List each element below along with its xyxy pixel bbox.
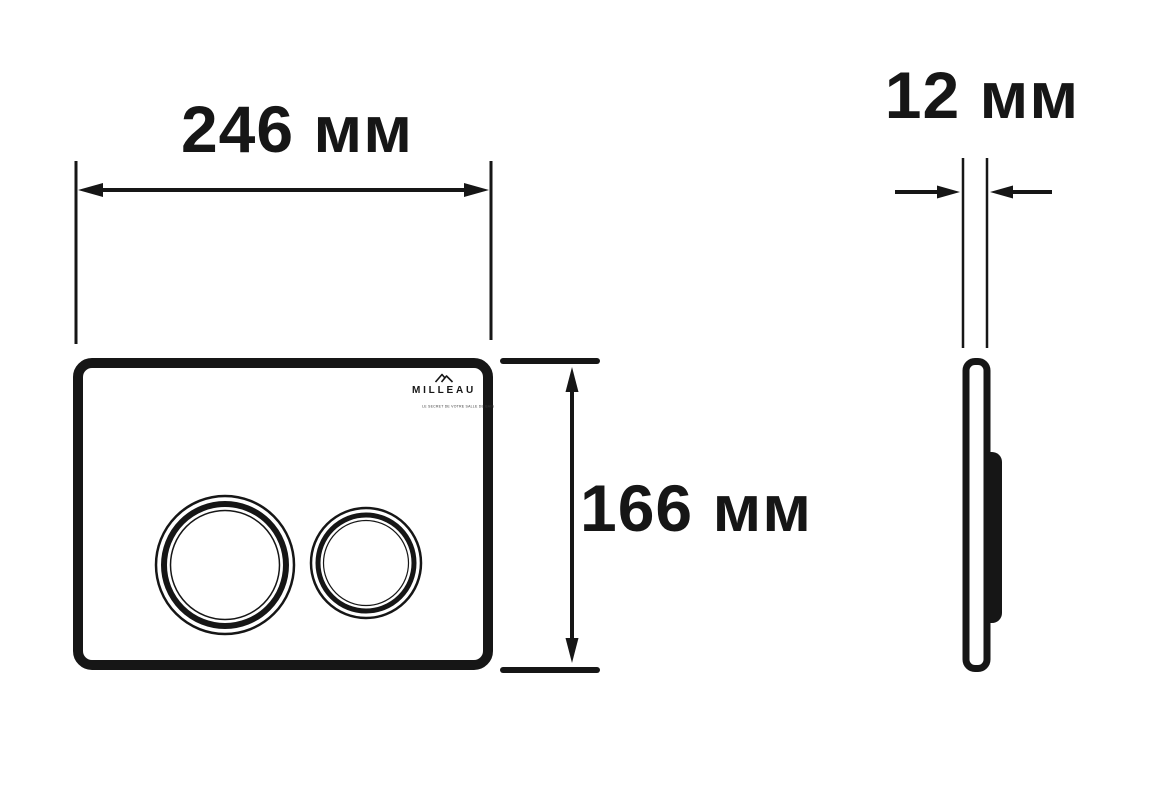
brand-logo: MILLEAU LE SECRET DE VOTRE SALLE DE BAIN (396, 372, 492, 414)
dimension-diagram: 246 мм 12 мм 166 мм MILLEAU LE SECRET DE… (0, 0, 1156, 792)
height-arrowhead-top (566, 367, 579, 392)
side-view-body (966, 362, 987, 669)
depth-arrowhead-right (990, 186, 1013, 199)
width-dimension (76, 161, 491, 344)
depth-dimension (895, 158, 1052, 348)
mountain-icon (434, 372, 454, 383)
width-dimension-label: 246 мм (127, 96, 467, 162)
width-arrowhead-left (78, 183, 103, 197)
brand-tagline: LE SECRET DE VOTRE SALLE DE BAIN (422, 405, 494, 408)
depth-dimension-label: 12 мм (822, 62, 1142, 128)
height-dimension-label: 166 мм (580, 475, 812, 541)
height-arrowhead-bottom (566, 638, 579, 663)
brand-name: MILLEAU (396, 385, 492, 396)
depth-arrowhead-left (937, 186, 960, 199)
side-view-profile (966, 362, 1002, 669)
width-arrowhead-right (464, 183, 489, 197)
